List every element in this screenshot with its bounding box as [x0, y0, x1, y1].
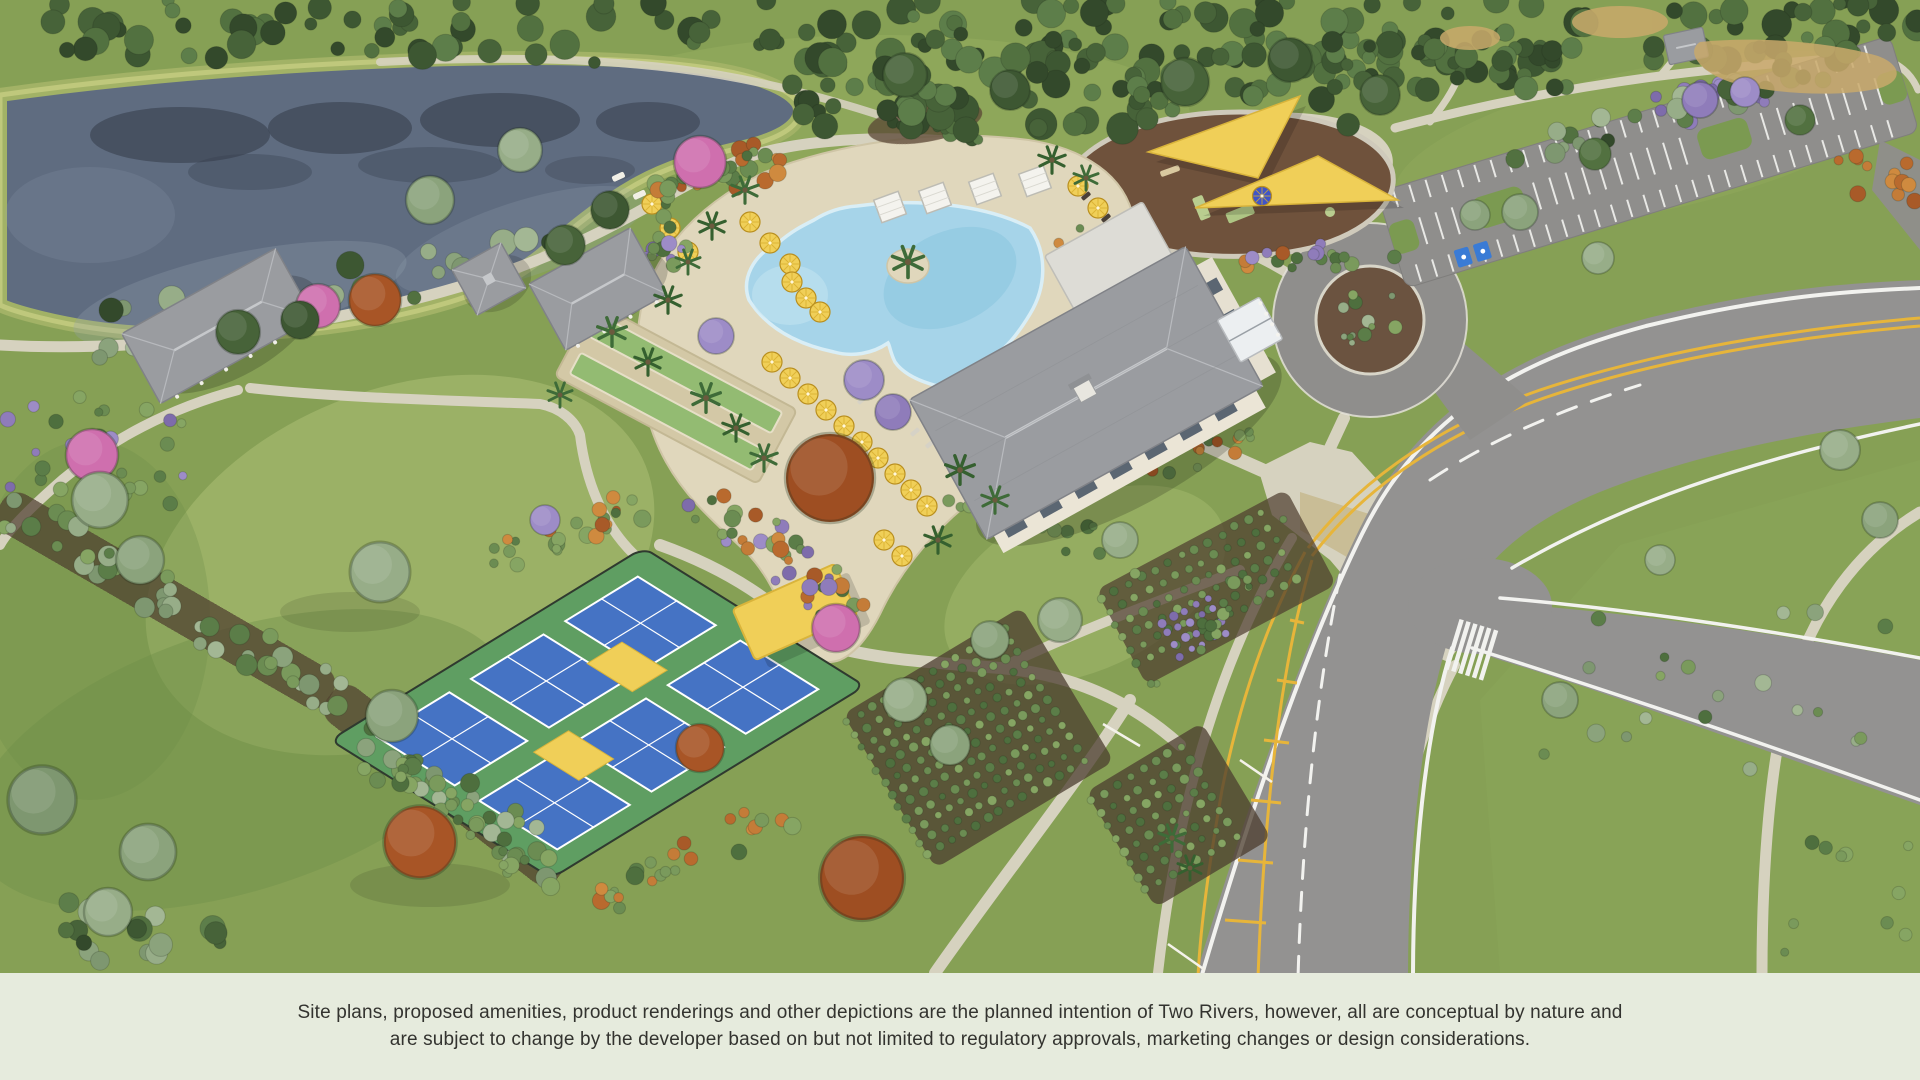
shrub [74, 37, 98, 61]
shrub [1621, 732, 1631, 742]
shrub [1199, 836, 1206, 843]
shrub [1152, 812, 1159, 819]
shrub [1124, 795, 1131, 802]
shrub [986, 712, 995, 721]
shrub [936, 842, 945, 851]
sage-tree [406, 176, 454, 224]
shrub [1193, 630, 1201, 638]
shrub [911, 775, 919, 783]
shrub [1073, 744, 1082, 753]
shrub [165, 3, 180, 18]
shrub [1228, 446, 1241, 459]
shrub [124, 25, 153, 54]
shrub [878, 745, 886, 753]
shrub [331, 42, 345, 56]
shrub [1244, 552, 1251, 559]
shrub [1018, 711, 1027, 720]
sage-tree [1645, 545, 1675, 575]
shrub [902, 814, 911, 823]
shrub [1755, 675, 1772, 692]
shrub [1194, 2, 1216, 24]
shrub [1164, 559, 1172, 567]
green-tree [883, 53, 927, 97]
shrub [1907, 193, 1920, 209]
disclaimer-line-1: Site plans, proposed amenities, product … [297, 1000, 1622, 1027]
shrub [957, 798, 964, 805]
shrub [1201, 782, 1208, 789]
shrub [76, 935, 92, 951]
shrub [1029, 674, 1036, 681]
shrub [1183, 810, 1189, 816]
shrub [1216, 807, 1224, 815]
shrub [1819, 841, 1832, 854]
shrub [725, 814, 736, 825]
shrub [771, 576, 780, 585]
shrub [907, 10, 919, 22]
shrub [989, 662, 997, 670]
shrub [308, 0, 331, 19]
shrub [1031, 704, 1040, 713]
shrub [1899, 928, 1912, 941]
shrub [898, 98, 926, 126]
shrub [755, 813, 769, 827]
shrub [994, 807, 1003, 816]
shrub [1699, 710, 1712, 723]
shrub [520, 855, 529, 864]
shrub [1850, 186, 1866, 202]
shrub [858, 744, 865, 751]
shrub [1104, 822, 1111, 829]
shrub [1862, 161, 1872, 171]
shrub [985, 763, 994, 772]
shrub [981, 782, 988, 789]
shrub [595, 883, 608, 896]
shrub [817, 10, 846, 39]
shrub [877, 100, 899, 122]
shrub [1117, 814, 1126, 823]
shrub [1245, 251, 1259, 265]
shrub [1219, 532, 1227, 540]
shrub [956, 46, 983, 73]
shrub [497, 812, 514, 829]
shrub [1169, 612, 1178, 621]
shrub [1226, 606, 1232, 612]
shrub [996, 724, 1005, 733]
shrub [1097, 809, 1105, 817]
shrub [177, 419, 186, 428]
shrub [802, 546, 814, 558]
shrub [1013, 648, 1021, 656]
shrub [943, 692, 950, 699]
shrub [1149, 779, 1156, 786]
shrub [1160, 579, 1167, 586]
shrub [1216, 564, 1225, 573]
shrub [1561, 38, 1582, 59]
shrub [1031, 786, 1039, 794]
shrub [1004, 737, 1011, 744]
shrub [1084, 84, 1101, 101]
shrub [1191, 823, 1200, 832]
shrub [958, 664, 967, 673]
shrub [1234, 833, 1241, 840]
shrub [1227, 576, 1240, 589]
shrub [870, 737, 877, 744]
shrub [194, 637, 207, 650]
shrub [645, 857, 656, 868]
shrub [1160, 856, 1169, 865]
shrub [1242, 43, 1267, 68]
shrub [964, 697, 971, 704]
shrub [890, 738, 899, 747]
shrub [954, 684, 961, 691]
shrub [1158, 619, 1167, 628]
shrub [1045, 31, 1062, 48]
shrub [1134, 873, 1143, 882]
shrub [1720, 0, 1748, 25]
shrub [1209, 605, 1216, 612]
shrub [784, 817, 801, 834]
shrub [1153, 845, 1160, 852]
shrub [229, 624, 249, 644]
rust-tree [676, 724, 724, 772]
shrub [916, 840, 923, 847]
shrub [689, 22, 710, 43]
shrub [1110, 803, 1117, 810]
shrub [1805, 835, 1819, 849]
shrub [1643, 36, 1664, 57]
shrub [894, 803, 901, 810]
shrub [914, 807, 923, 816]
shrub [1170, 817, 1177, 824]
shrub [985, 734, 992, 741]
shrub [1278, 549, 1285, 556]
shrub [595, 517, 610, 532]
shrub [1125, 581, 1132, 588]
shrub [886, 758, 896, 768]
shrub [1039, 716, 1046, 723]
disclaimer-band: Site plans, proposed amenities, product … [0, 973, 1920, 1080]
shrub [389, 0, 407, 18]
shrub [772, 541, 789, 558]
shrub [682, 499, 695, 512]
shrub [1369, 323, 1376, 330]
shrub [1144, 830, 1154, 840]
shrub [1583, 662, 1595, 674]
shrub [344, 11, 361, 28]
shrub [41, 10, 65, 34]
shrub [782, 75, 802, 95]
shrub [52, 541, 63, 552]
shrub [1136, 108, 1158, 130]
shrub [513, 817, 525, 829]
shrub [59, 893, 79, 913]
shrub [935, 84, 957, 106]
shrub [798, 24, 815, 41]
shrub [460, 773, 479, 792]
purple-shrub [1682, 82, 1718, 118]
shrub [49, 414, 64, 429]
shrub [1176, 653, 1184, 661]
shrub [58, 922, 74, 938]
shrub [1074, 58, 1090, 74]
shrub [946, 672, 955, 681]
shrub [1008, 719, 1016, 727]
shrub [1107, 609, 1114, 616]
shrub [851, 731, 858, 738]
shrub [1006, 799, 1014, 807]
shrub [550, 30, 580, 60]
shrub [1022, 744, 1029, 751]
shrub [227, 30, 256, 59]
shrub [1789, 919, 1799, 929]
shrub [1140, 852, 1149, 861]
shrub [924, 718, 932, 726]
shrub [1036, 765, 1044, 773]
shrub [1900, 157, 1913, 170]
shrub [489, 543, 499, 553]
shrub [1834, 156, 1843, 165]
shrub [1628, 109, 1642, 123]
shrub [936, 680, 944, 688]
shrub [1171, 641, 1178, 648]
shrub [478, 39, 502, 63]
shrub [1901, 178, 1916, 193]
shrub [1163, 9, 1183, 29]
shrub [909, 742, 919, 752]
shrub [1263, 556, 1272, 565]
shrub [784, 556, 792, 564]
shrub [899, 783, 908, 792]
green-tree [216, 310, 260, 354]
shrub [1193, 601, 1200, 608]
shrub [648, 243, 660, 255]
shrub [262, 628, 278, 644]
shrub [1415, 78, 1439, 102]
shrub [1190, 789, 1198, 797]
shrub [1112, 835, 1119, 842]
shrub [1163, 802, 1172, 811]
shrub [923, 850, 932, 859]
shrub [104, 548, 114, 558]
shrub [749, 508, 763, 522]
shrub [888, 791, 897, 800]
sage-tree [8, 766, 76, 834]
shrub [571, 517, 583, 529]
shrub [1514, 76, 1538, 100]
shrub [741, 542, 755, 556]
shrub [1067, 765, 1075, 773]
shrub [1230, 522, 1238, 530]
shrub [1174, 623, 1181, 630]
shrub [1157, 824, 1165, 832]
shrub [1441, 7, 1454, 20]
sage-tree [84, 888, 132, 936]
shrub [1152, 757, 1161, 766]
shrub [299, 674, 320, 695]
shrub [660, 180, 677, 197]
shrub [160, 437, 174, 451]
shrub [894, 772, 901, 779]
shrub [1833, 0, 1846, 10]
sage-tree [498, 128, 542, 172]
shrub [955, 765, 963, 773]
shrub [953, 117, 979, 143]
shrub [670, 866, 680, 876]
shrub [802, 579, 819, 596]
shrub [843, 718, 850, 725]
shrub [1154, 632, 1162, 640]
shrub [1801, 32, 1813, 44]
shrub [627, 495, 638, 506]
shrub [1680, 2, 1707, 29]
shrub [407, 291, 421, 305]
shrub [149, 933, 172, 956]
shrub [1193, 767, 1203, 777]
shrub [852, 11, 881, 40]
shrub [1102, 34, 1129, 61]
shrub [773, 518, 781, 526]
shrub [490, 559, 499, 568]
green-tree [1268, 38, 1312, 82]
shrub [1250, 22, 1265, 37]
shrub [1347, 334, 1354, 341]
shrub [420, 244, 436, 260]
shrub [205, 47, 228, 70]
shrub [1127, 860, 1134, 867]
shrub [499, 861, 508, 870]
shrub [1655, 105, 1667, 117]
shrub [22, 517, 41, 536]
shrub [59, 42, 74, 57]
shrub [497, 832, 512, 847]
shrub [1027, 725, 1034, 732]
shrub [626, 867, 644, 885]
shrub [1061, 547, 1070, 556]
shrub [858, 711, 865, 718]
shrub [1175, 794, 1184, 803]
green-tree [1785, 105, 1815, 135]
shrub [1271, 569, 1279, 577]
shrub [1005, 769, 1012, 776]
sage-tree [1542, 682, 1578, 718]
shrub [1592, 108, 1611, 127]
shrub [1362, 51, 1375, 64]
shrub [446, 787, 457, 798]
shrub [35, 461, 50, 476]
shrub [634, 510, 651, 527]
shrub [1186, 618, 1195, 627]
shrub [208, 641, 225, 658]
shrub [1180, 586, 1187, 593]
shrub [896, 750, 905, 759]
shrub [1171, 571, 1179, 579]
shrub [542, 877, 560, 895]
shrub [1021, 661, 1029, 669]
shrub [846, 78, 864, 96]
shrub [769, 164, 786, 181]
shrub [320, 663, 332, 675]
shrub [1358, 328, 1372, 342]
shrub [1069, 38, 1082, 51]
shrub [989, 744, 996, 751]
shrub [510, 557, 525, 572]
shrub [951, 654, 959, 662]
sage-tree [120, 824, 176, 880]
shrub [940, 772, 949, 781]
shrub [1341, 59, 1353, 71]
pink-tree [674, 136, 726, 188]
shrub [820, 578, 837, 595]
shrub [1250, 564, 1259, 573]
shrub [1213, 584, 1220, 591]
shrub [1146, 865, 1154, 873]
shrub [782, 566, 796, 580]
shrub [139, 402, 154, 417]
shrub [1142, 799, 1152, 809]
shrub [1327, 79, 1343, 95]
shrub [1189, 646, 1195, 652]
shrub [1280, 516, 1287, 523]
shrub [1159, 770, 1168, 779]
shrub [1063, 112, 1087, 136]
shrub [1010, 668, 1018, 676]
shrub [614, 893, 624, 903]
shrub [1792, 705, 1803, 716]
shrub [1262, 248, 1272, 258]
shrub [592, 502, 607, 517]
shrub [517, 15, 543, 41]
shrub [1127, 646, 1135, 654]
shrub [1348, 290, 1358, 300]
shrub [1836, 851, 1847, 862]
shrub [909, 826, 916, 833]
shrub [134, 597, 154, 617]
shrub [1222, 630, 1230, 638]
shrub [1061, 754, 1067, 760]
shrub [1223, 818, 1232, 827]
shrub [1133, 840, 1140, 847]
shrub [99, 298, 123, 322]
shrub [1029, 119, 1047, 137]
shrub [1145, 621, 1153, 629]
shrub [882, 779, 890, 787]
shrub [956, 715, 966, 725]
shrub [1341, 333, 1347, 339]
shrub [926, 30, 945, 49]
shrub [1364, 40, 1376, 52]
shrub [1016, 678, 1025, 687]
shrub [504, 546, 516, 558]
shrub [926, 800, 935, 809]
shrub [818, 48, 847, 77]
shrub [920, 820, 929, 829]
shrub [1548, 122, 1566, 140]
shrub [1205, 595, 1212, 602]
shrub [1065, 732, 1073, 740]
shrub [993, 774, 1001, 782]
shrub [919, 787, 928, 796]
shrub [264, 657, 277, 670]
shrub [1126, 614, 1134, 622]
pink-tree [812, 604, 860, 652]
shrub [408, 41, 436, 69]
shrub [1129, 807, 1137, 815]
rust-tree [349, 274, 401, 326]
shrub [1151, 567, 1159, 575]
shrub [1203, 538, 1212, 547]
shrub [503, 534, 513, 544]
shrub [1213, 828, 1219, 834]
